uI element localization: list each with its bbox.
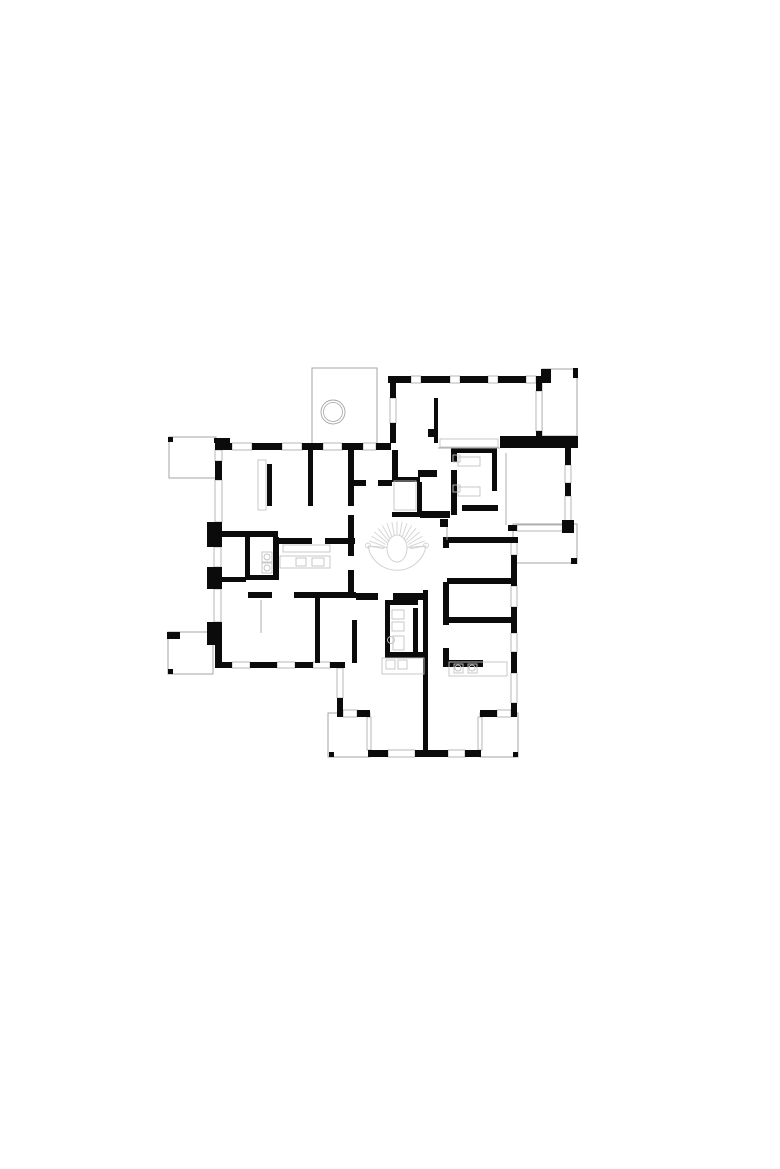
wall-segment xyxy=(330,662,345,668)
wall-segment xyxy=(348,450,354,506)
window-segment xyxy=(388,750,415,757)
window-segment xyxy=(448,750,465,757)
window-segment xyxy=(337,668,343,698)
wall-segment xyxy=(278,538,312,544)
wall-segment xyxy=(492,453,497,491)
page-background xyxy=(0,0,780,1169)
wall-segment xyxy=(413,608,418,653)
furniture-item xyxy=(458,487,480,496)
window-segment xyxy=(282,443,302,450)
window-segment xyxy=(214,547,221,567)
wall-segment xyxy=(214,438,230,443)
wall-segment xyxy=(562,520,574,533)
wall-segment xyxy=(536,431,542,436)
wall-segment xyxy=(215,443,232,450)
window-segment xyxy=(277,662,295,668)
furniture-item xyxy=(264,554,270,560)
wall-segment xyxy=(511,703,517,717)
wall-segment xyxy=(447,578,513,584)
wall-segment xyxy=(207,622,222,645)
wall-segment xyxy=(216,662,232,668)
wall-segment xyxy=(421,376,450,383)
furniture-item xyxy=(393,636,404,650)
wall-segment xyxy=(245,537,250,578)
window-segment xyxy=(565,496,571,521)
wall-segment xyxy=(378,480,392,486)
wall-segment xyxy=(508,525,517,531)
wall-segment xyxy=(368,750,388,757)
window-segment xyxy=(367,717,371,750)
window-segment xyxy=(232,443,252,450)
wall-segment xyxy=(168,437,173,442)
wall-segment xyxy=(451,470,457,515)
wall-segment xyxy=(393,593,427,600)
window-segment xyxy=(411,376,421,383)
window-segment xyxy=(390,398,396,423)
stair-tread-line xyxy=(409,541,425,547)
wall-segment xyxy=(295,662,313,668)
window-segment xyxy=(511,673,517,703)
wall-segment xyxy=(513,752,518,757)
wall-segment xyxy=(448,537,518,543)
wall-segment xyxy=(390,383,396,398)
wall-segment xyxy=(460,376,488,383)
wall-segment xyxy=(443,582,449,625)
stair-well-oval xyxy=(387,535,407,562)
wall-segment xyxy=(248,592,272,598)
wall-segment xyxy=(385,652,427,658)
wall-segment xyxy=(465,750,481,757)
wall-segment xyxy=(267,464,272,506)
window-segment xyxy=(488,376,498,383)
wall-segment xyxy=(417,482,422,512)
wall-segment xyxy=(385,600,390,653)
wall-segment xyxy=(440,519,448,527)
wall-segment xyxy=(536,383,542,391)
window-segment xyxy=(511,633,517,652)
balcony-outline xyxy=(169,437,216,478)
furniture-item xyxy=(458,457,480,466)
window-segment xyxy=(323,443,342,450)
window-segment xyxy=(497,710,511,717)
balcony-outline xyxy=(312,368,377,444)
wall-segment xyxy=(222,531,278,537)
furniture-item xyxy=(392,610,404,619)
wall-segment xyxy=(252,443,282,450)
window-segment xyxy=(215,480,222,522)
wall-segment xyxy=(376,443,391,450)
window-segment xyxy=(536,391,542,431)
furniture-item xyxy=(440,439,498,447)
wall-segment xyxy=(207,567,222,589)
furniture-item xyxy=(262,552,272,562)
wall-segment xyxy=(443,648,449,667)
wall-segment xyxy=(337,698,343,717)
wall-segment xyxy=(480,710,497,717)
window-segment xyxy=(232,662,250,668)
wall-segment xyxy=(511,652,517,673)
wall-segment xyxy=(447,617,513,623)
wall-segment xyxy=(573,368,578,378)
wall-segment xyxy=(428,429,437,437)
window-segment xyxy=(450,376,460,383)
window-segment xyxy=(214,589,221,622)
wall-segment xyxy=(348,570,354,594)
floor-plan-drawing xyxy=(0,0,780,1169)
window-segment xyxy=(343,710,357,717)
furniture-item xyxy=(296,558,306,566)
wall-segment xyxy=(457,448,497,453)
window-segment xyxy=(363,443,376,450)
wall-segment xyxy=(302,443,323,450)
wall-segment xyxy=(315,598,320,663)
wall-segment xyxy=(418,470,437,477)
furniture-item xyxy=(262,563,272,573)
wall-segment xyxy=(565,483,571,496)
balcony-outline xyxy=(328,713,370,757)
furniture-item xyxy=(394,481,416,510)
wall-segment xyxy=(571,558,577,564)
wall-segment xyxy=(352,480,366,486)
wall-segment xyxy=(222,577,246,582)
wall-segment xyxy=(250,662,277,668)
stair-tread-line xyxy=(371,536,385,544)
terrace-circle-outer xyxy=(321,400,345,424)
furniture-item xyxy=(258,460,266,510)
window-segment xyxy=(511,586,517,607)
stair-tread-line xyxy=(408,536,422,544)
wall-segment xyxy=(565,448,571,465)
window-segment xyxy=(478,717,482,750)
wall-segment xyxy=(541,369,551,377)
furniture-item xyxy=(392,622,404,631)
furniture-item xyxy=(398,660,407,669)
wall-segment xyxy=(245,575,279,580)
stair-tread-line xyxy=(404,525,412,539)
stair-tread-line xyxy=(369,541,385,547)
wall-segment xyxy=(536,376,551,383)
furniture-item xyxy=(264,565,270,571)
wall-segment xyxy=(167,632,180,639)
balcony-outline xyxy=(480,713,518,757)
wall-segment xyxy=(357,710,370,717)
wall-segment xyxy=(294,592,356,598)
stair-tread-line xyxy=(382,525,390,539)
window-segment xyxy=(565,465,571,483)
wall-segment xyxy=(342,443,363,450)
wall-segment xyxy=(356,593,378,600)
wall-segment xyxy=(215,461,222,480)
window-segment xyxy=(215,450,222,461)
furniture-item xyxy=(312,558,324,566)
wall-segment xyxy=(352,620,357,663)
spiral-stair-icon xyxy=(366,522,429,571)
furniture-layer xyxy=(258,439,507,676)
wall-segment xyxy=(390,423,396,443)
terrace-skylight-circle xyxy=(321,400,345,424)
window-segment xyxy=(526,376,536,383)
wall-segment xyxy=(443,537,449,548)
wall-segment xyxy=(329,752,334,757)
terrace-circle-inner xyxy=(324,403,343,422)
wall-segment xyxy=(447,660,483,667)
wall-segment xyxy=(207,522,222,547)
wall-segment xyxy=(392,512,420,517)
wall-segment xyxy=(168,669,173,674)
wall-segment xyxy=(392,450,398,479)
wall-segment xyxy=(388,376,411,383)
wall-segment xyxy=(415,750,448,757)
wall-segment xyxy=(500,436,578,448)
wall-segment xyxy=(498,376,526,383)
wall-segment xyxy=(348,515,354,556)
wall-segment xyxy=(420,511,450,518)
furniture-item xyxy=(386,660,395,669)
wall-segment xyxy=(462,505,498,511)
furniture-item xyxy=(283,545,330,552)
wall-segment xyxy=(308,450,313,506)
window-segment xyxy=(517,525,563,531)
